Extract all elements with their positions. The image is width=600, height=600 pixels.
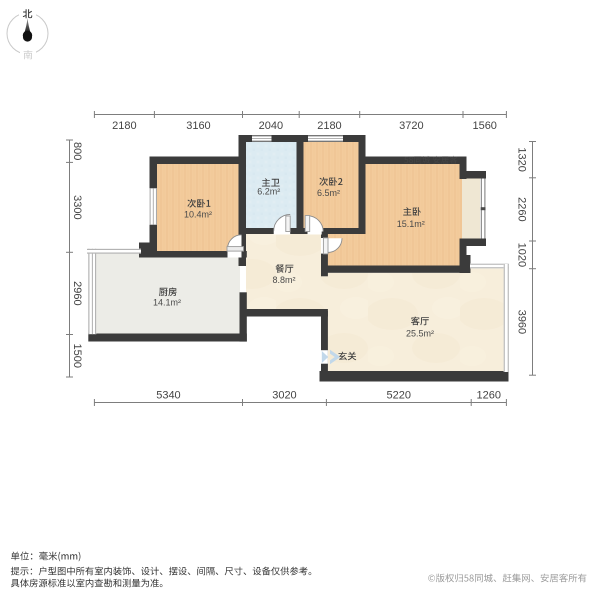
svg-text:2180: 2180 [112, 120, 136, 132]
svg-text:2960: 2960 [71, 281, 83, 305]
svg-text:8.8m²: 8.8m² [272, 275, 295, 285]
svg-text:2260: 2260 [516, 197, 528, 221]
svg-text:25.5m²: 25.5m² [406, 329, 434, 339]
svg-text:1560: 1560 [472, 120, 496, 132]
svg-text:3720: 3720 [399, 120, 423, 132]
svg-text:1320: 1320 [516, 147, 528, 171]
svg-text:3160: 3160 [186, 120, 210, 132]
svg-text:2040: 2040 [259, 120, 283, 132]
svg-text:3020: 3020 [272, 390, 296, 402]
svg-text:1500: 1500 [71, 344, 83, 368]
svg-text:2180: 2180 [317, 120, 341, 132]
svg-text:5220: 5220 [387, 390, 411, 402]
svg-text:15.1m²: 15.1m² [397, 219, 425, 229]
svg-text:6.2m²: 6.2m² [257, 187, 280, 197]
svg-text:800: 800 [71, 142, 83, 160]
svg-text:14.1m²: 14.1m² [153, 297, 181, 307]
svg-text:3300: 3300 [71, 195, 83, 219]
svg-text:6.5m²: 6.5m² [317, 188, 340, 198]
svg-text:1020: 1020 [516, 243, 528, 267]
svg-text:5340: 5340 [156, 390, 180, 402]
svg-text:10.4m²: 10.4m² [184, 210, 212, 220]
svg-text:3960: 3960 [516, 310, 528, 334]
svg-text:1260: 1260 [477, 390, 501, 402]
